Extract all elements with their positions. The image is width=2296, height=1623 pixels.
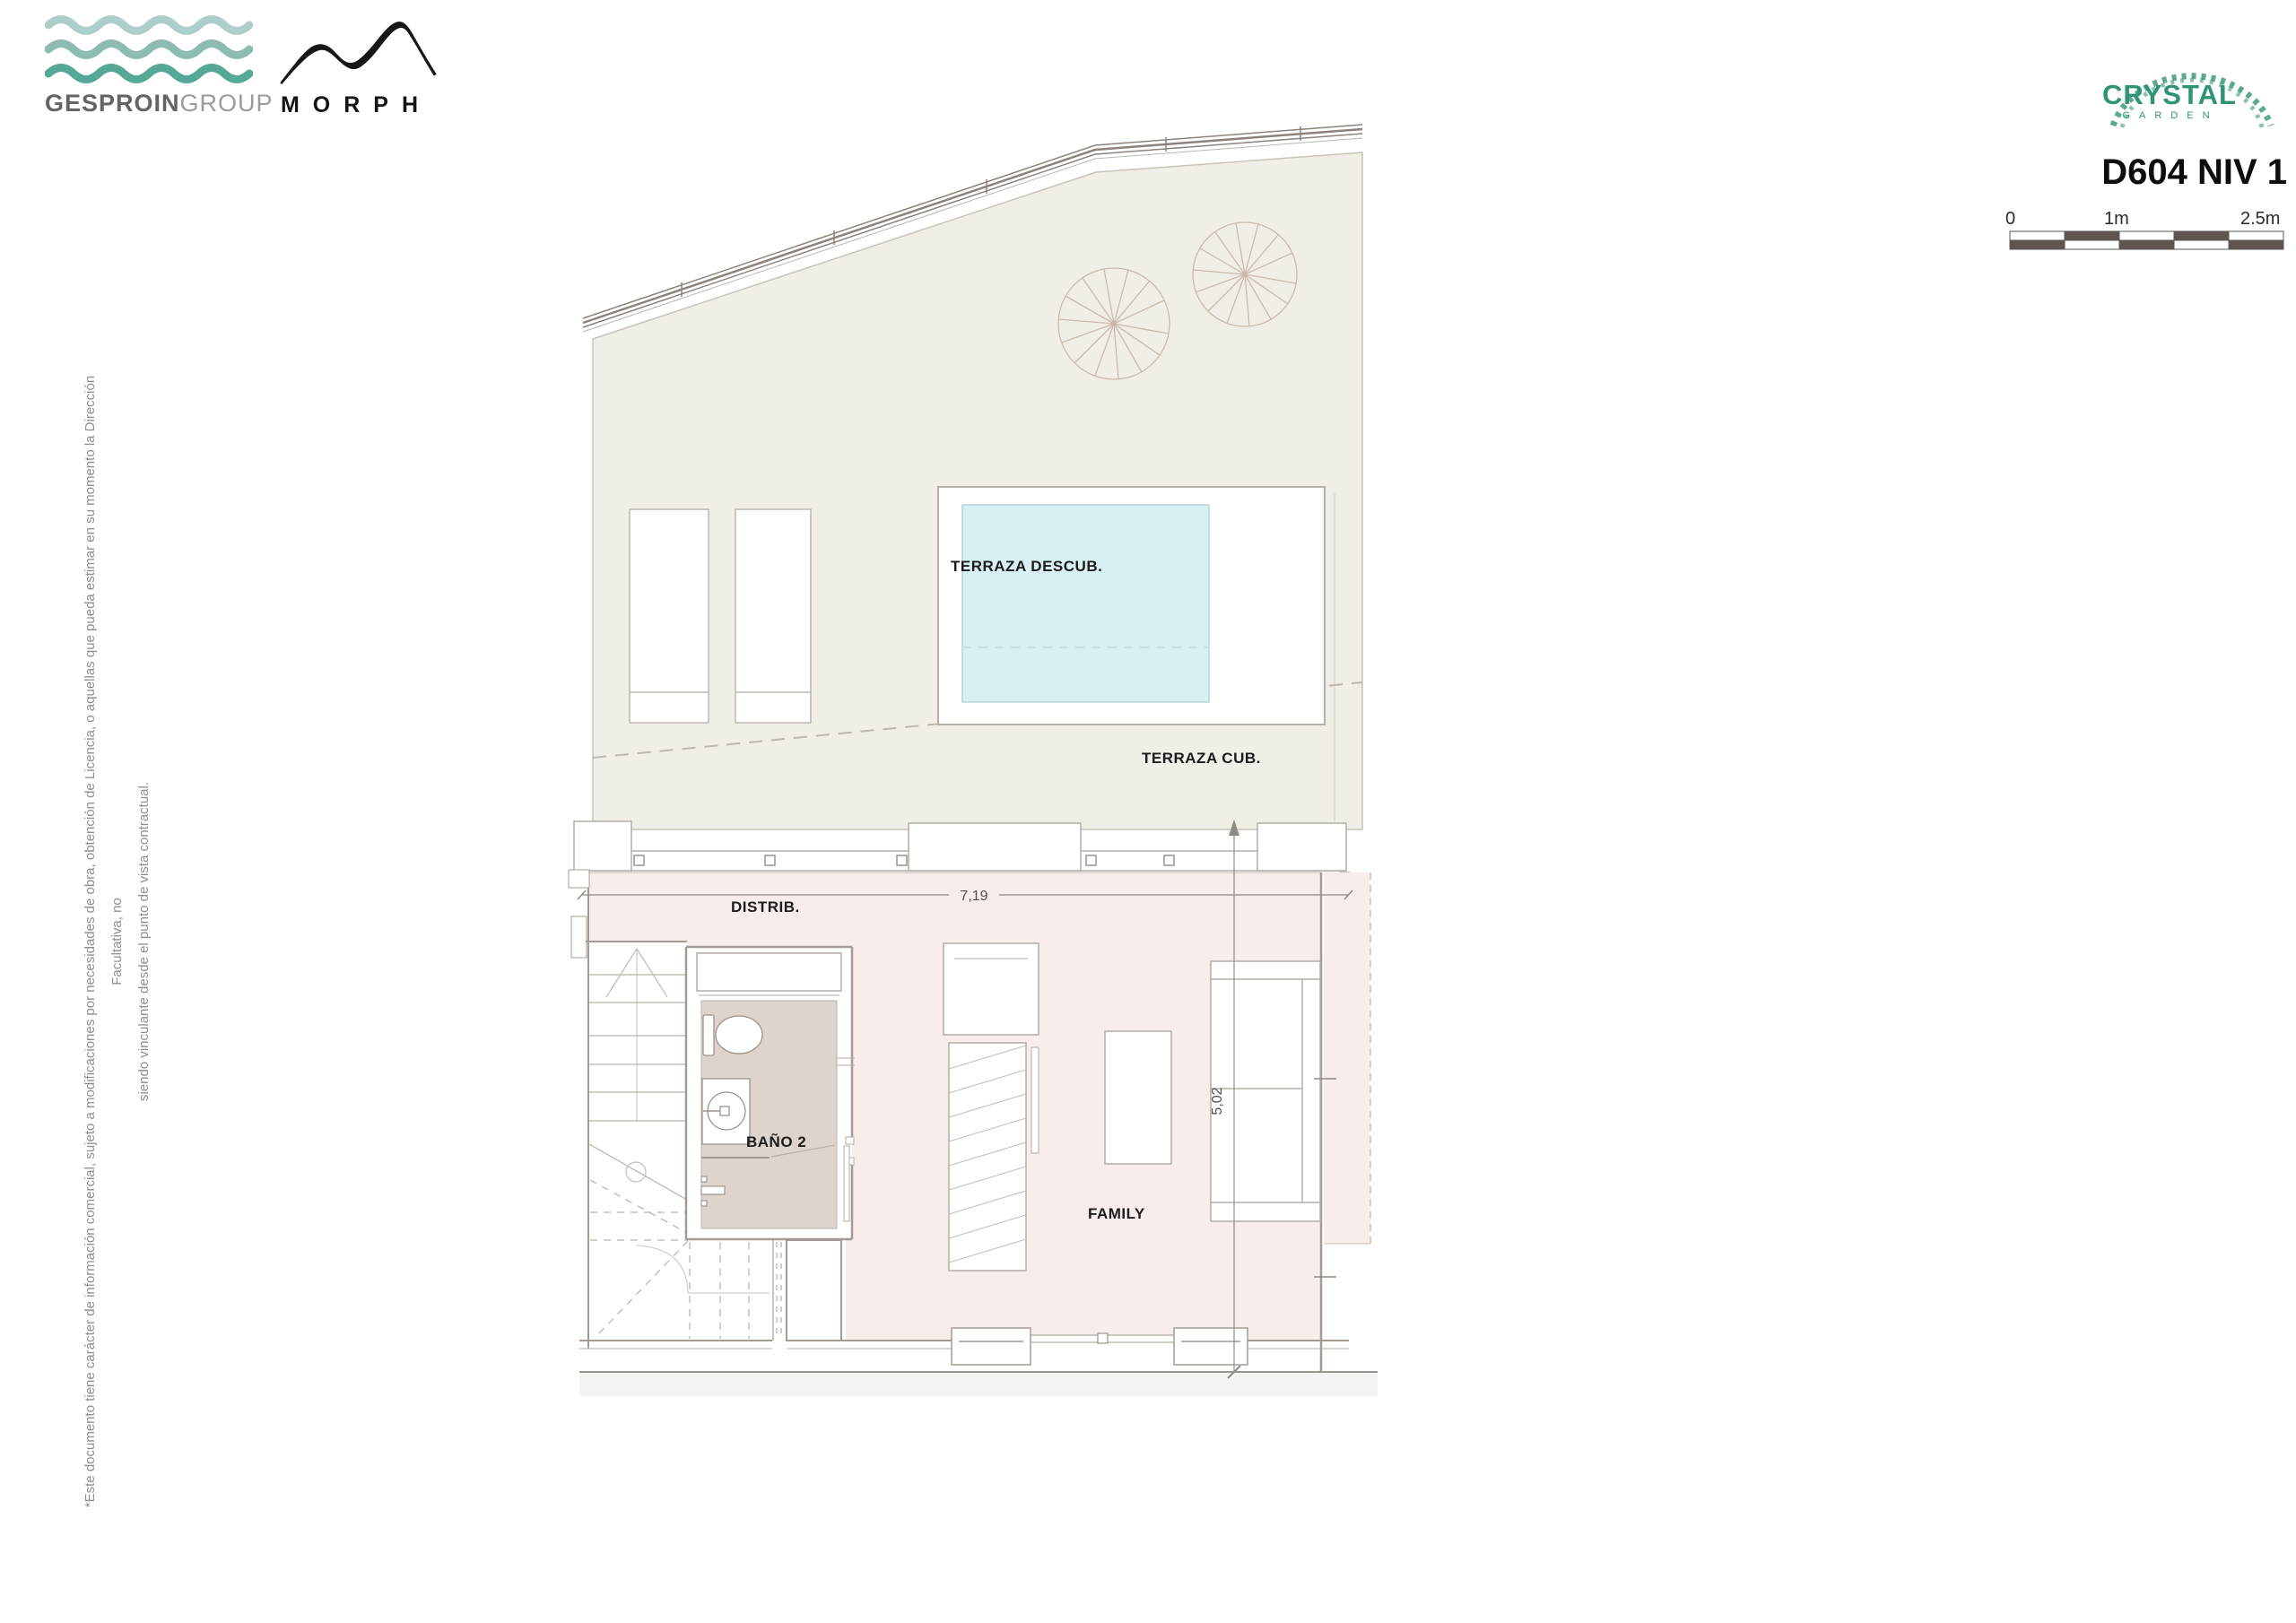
- pool: [962, 505, 1209, 702]
- sofa: [1211, 961, 1320, 1221]
- room-label-family: FAMILY: [1088, 1205, 1145, 1222]
- room-label-bano2: BAÑO 2: [746, 1133, 806, 1150]
- sunbed: [735, 509, 811, 723]
- toilet-icon: [703, 1015, 762, 1055]
- wardrobe-unit: [944, 943, 1039, 1271]
- sink-icon: [702, 1079, 750, 1144]
- stair-landing: [787, 1240, 841, 1341]
- dim-height-value: 5,02: [1210, 1087, 1225, 1115]
- coffee-table: [1105, 1031, 1171, 1164]
- sunbed: [630, 509, 709, 723]
- closet: [697, 953, 841, 991]
- room-label-distrib: DISTRIB.: [731, 898, 800, 916]
- room-label-terraza-cub: TERRAZA CUB.: [1142, 750, 1261, 767]
- adjacent-strip: [1324, 872, 1370, 1244]
- floor-plan: TERRAZA DESCUB. TERRAZA CUB.: [0, 0, 2296, 1623]
- room-label-terraza-descub: TERRAZA DESCUB.: [951, 558, 1102, 575]
- bathroom: [686, 947, 855, 1239]
- dim-width-value: 7,19: [960, 889, 987, 904]
- plan-sheet: { "branding": { "gesproin": { "name_bold…: [0, 0, 2296, 1623]
